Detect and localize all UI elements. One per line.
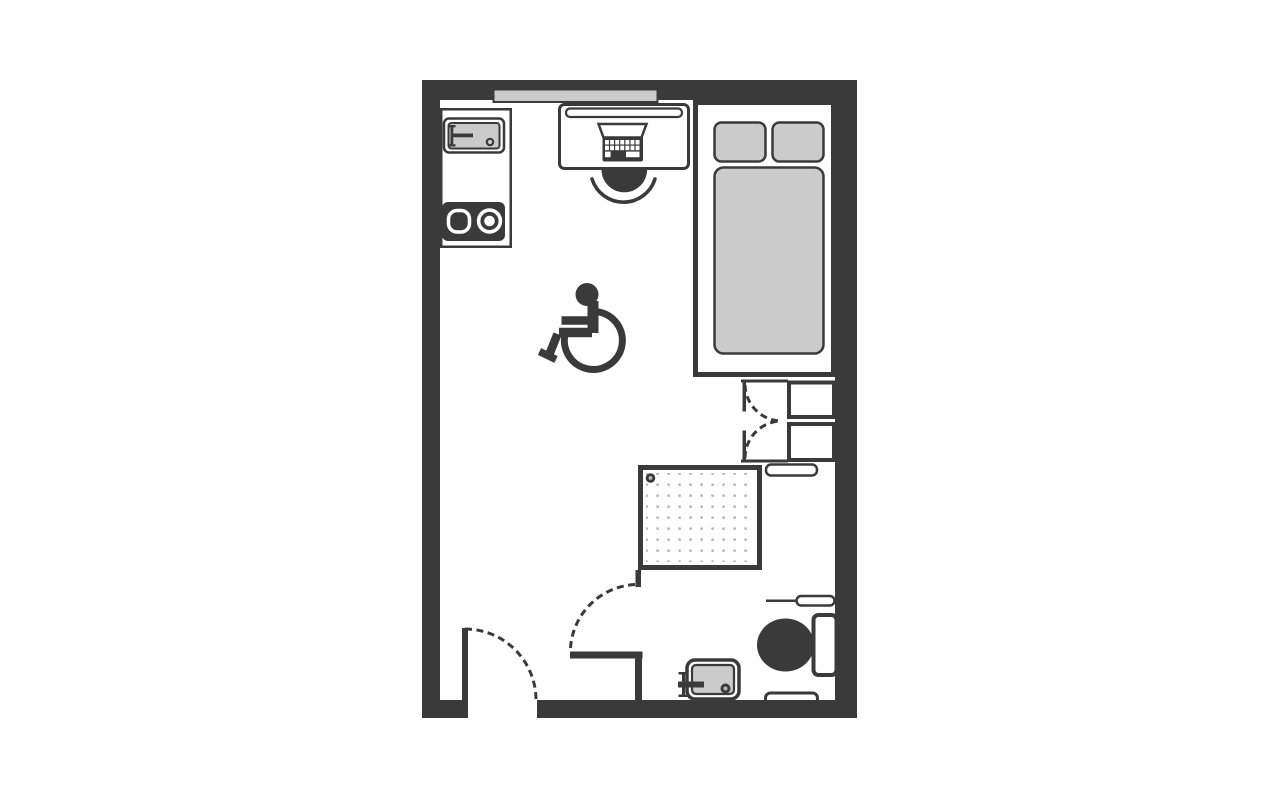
- mattress: [715, 168, 824, 354]
- towel-rail: [766, 465, 817, 476]
- entry-door: [462, 628, 536, 700]
- kitchen-sink: [444, 119, 504, 153]
- wardrobe: [741, 380, 834, 476]
- toilet-bowl: [757, 619, 814, 672]
- toilet-area: [757, 596, 837, 675]
- bathroom-partition: [570, 570, 643, 701]
- desk-area: [560, 105, 689, 203]
- desk-shelf: [566, 109, 682, 118]
- wall-bottom-left: [422, 700, 468, 718]
- kitchenette: [441, 109, 511, 247]
- chair-seat: [602, 170, 648, 193]
- entry-door-arc: [465, 629, 536, 700]
- shower: [641, 468, 760, 568]
- grab-rail-arm: [766, 600, 798, 603]
- pillow-right: [773, 123, 824, 162]
- wall-left: [422, 80, 440, 718]
- wash-basin: [678, 660, 739, 699]
- bed: [696, 103, 834, 375]
- pillow-left: [715, 123, 766, 162]
- window: [494, 90, 658, 103]
- basin-drain-center: [724, 687, 728, 691]
- entry-door-leaf: [462, 628, 468, 700]
- wardrobe-frame-bottom: [741, 460, 788, 463]
- floor-plan-canvas: Accessible studio room floor plan: [0, 0, 1280, 800]
- wardrobe-door-arc-top: [745, 385, 781, 421]
- floor-plan-image: [0, 0, 1280, 800]
- bathroom-wall-horizontal: [570, 652, 643, 659]
- toilet: [757, 615, 837, 675]
- bathroom-wall-stub: [636, 570, 642, 587]
- wall-bottom-right: [537, 700, 857, 718]
- shower-drain-center: [649, 476, 653, 480]
- hob: [442, 202, 505, 241]
- laptop-screen: [599, 124, 647, 138]
- toilet-cistern: [814, 615, 837, 675]
- shower-antislip-dots: [646, 473, 754, 562]
- wardrobe-door-arc-bottom: [745, 421, 781, 458]
- wheelchair-accessibility-icon: [540, 283, 623, 369]
- bathroom-wall-vertical: [635, 652, 642, 701]
- wardrobe-frame-top: [741, 380, 788, 383]
- bathroom-door-arc: [571, 585, 637, 649]
- laptop-icon: [599, 124, 647, 162]
- wardrobe-shelf-top: [789, 383, 834, 418]
- wardrobe-shelf-bottom: [789, 424, 834, 460]
- grab-rail: [797, 596, 835, 606]
